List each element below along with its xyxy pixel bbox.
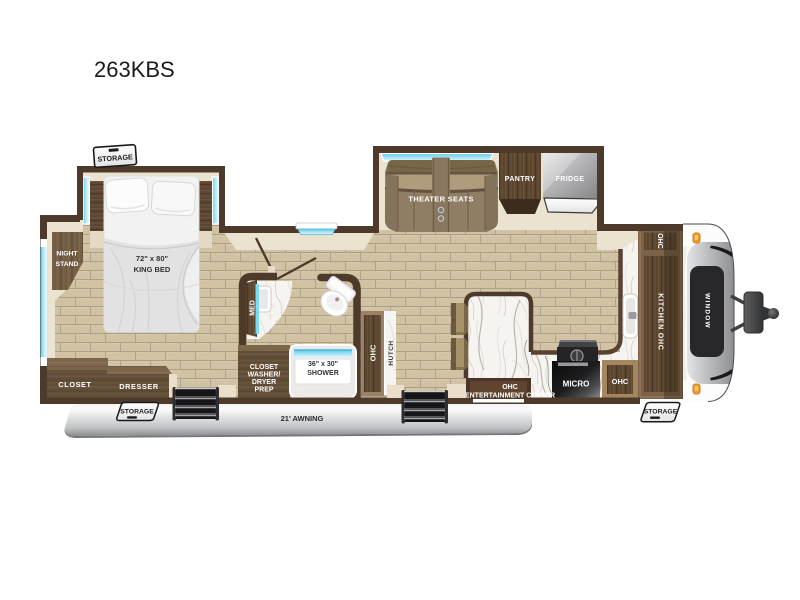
svg-text:STAND: STAND <box>56 261 79 268</box>
svg-text:KING BED: KING BED <box>134 265 171 274</box>
svg-text:72" x 80": 72" x 80" <box>136 254 169 263</box>
svg-text:STORAGE: STORAGE <box>120 409 154 416</box>
svg-text:WASHER/: WASHER/ <box>248 372 281 379</box>
svg-text:36" x 30": 36" x 30" <box>308 361 338 368</box>
svg-text:NIGHT: NIGHT <box>56 251 78 258</box>
svg-text:CLOSET: CLOSET <box>58 380 91 389</box>
svg-text:MED: MED <box>250 300 257 316</box>
svg-text:THEATER SEATS: THEATER SEATS <box>408 195 473 204</box>
svg-text:MICRO: MICRO <box>563 380 590 389</box>
svg-text:OHC: OHC <box>656 233 663 249</box>
svg-text:STORAGE: STORAGE <box>644 409 678 416</box>
svg-text:HUTCH: HUTCH <box>388 340 395 365</box>
svg-text:SHOWER: SHOWER <box>307 370 339 377</box>
svg-text:263KBS: 263KBS <box>94 57 175 82</box>
svg-text:DRYER: DRYER <box>252 379 276 386</box>
svg-text:PREP: PREP <box>254 387 273 394</box>
svg-text:FRIDGE: FRIDGE <box>556 176 585 183</box>
svg-text:OHC: OHC <box>502 384 518 391</box>
svg-text:DRESSER: DRESSER <box>119 382 159 391</box>
svg-text:PANTRY: PANTRY <box>505 176 535 183</box>
svg-text:CLOSET: CLOSET <box>250 364 279 371</box>
svg-text:OHC: OHC <box>612 377 629 386</box>
svg-text:KITCHEN OHC: KITCHEN OHC <box>657 293 664 350</box>
svg-text:21' AWNING: 21' AWNING <box>281 414 324 423</box>
svg-text:WINDOW: WINDOW <box>704 293 711 329</box>
svg-text:OHC: OHC <box>369 344 378 361</box>
